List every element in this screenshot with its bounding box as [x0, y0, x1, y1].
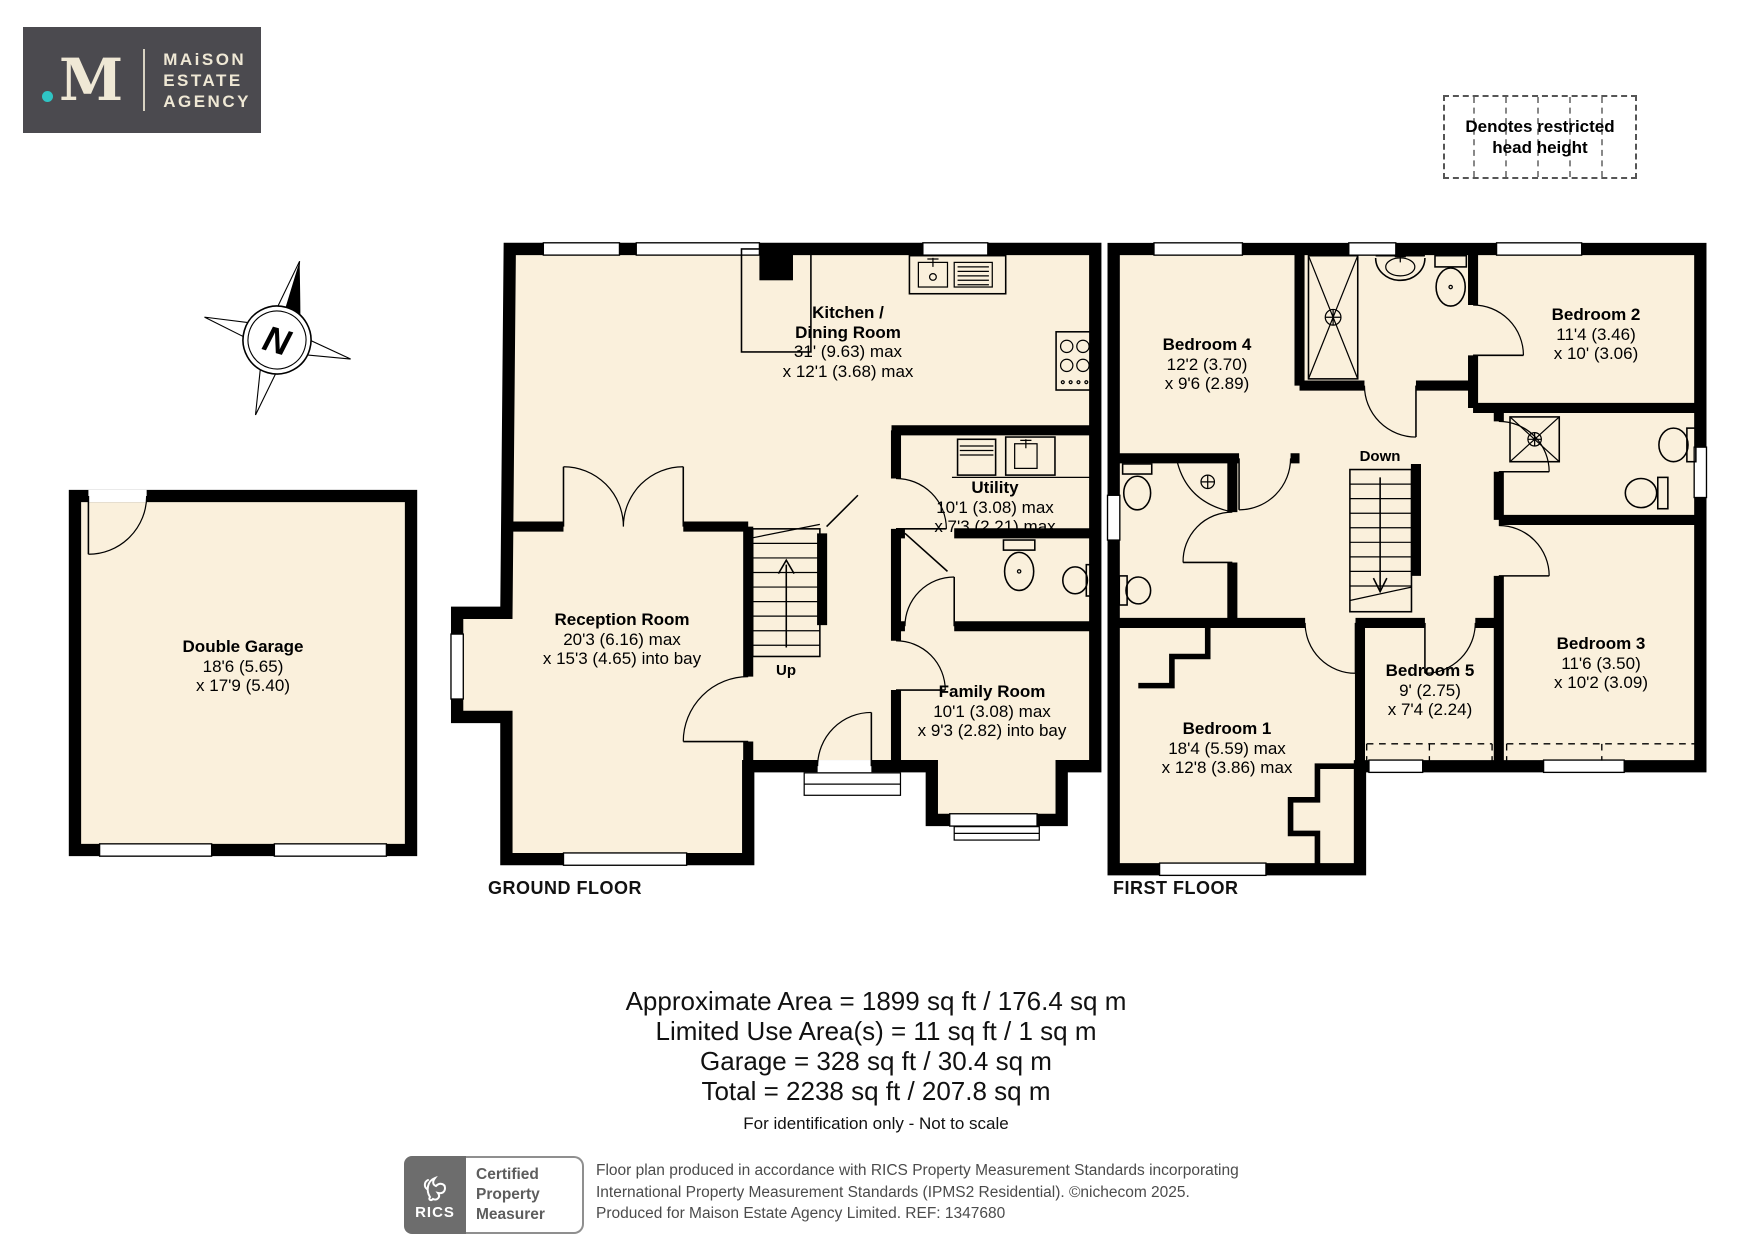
room-dim: x 15'3 (4.65) into bay — [502, 649, 742, 669]
stairs-down-label: Down — [1350, 448, 1410, 465]
total-area: Total = 2238 sq ft / 207.8 sq m — [376, 1076, 1376, 1106]
room-dim: 11'6 (3.50) — [1501, 654, 1701, 674]
legend-text-line1: Denotes restricted — [1439, 116, 1641, 137]
scale-disclaimer: For identification only - Not to scale — [376, 1114, 1376, 1134]
room-dim: x 7'3 (2.21) max — [895, 517, 1095, 537]
room-name: Family Room — [892, 682, 1092, 702]
garage-area: Garage = 328 sq ft / 30.4 sq m — [376, 1046, 1376, 1076]
room-dim: x 9'3 (2.82) into bay — [892, 721, 1092, 741]
room-dim: 11'4 (3.46) — [1496, 325, 1696, 345]
room-dim: x 12'1 (3.68) max — [708, 362, 988, 382]
stairs-up-label: Up — [756, 662, 816, 679]
room-dim: x 10'2 (3.09) — [1501, 673, 1701, 693]
room-dim: x 10' (3.06) — [1496, 344, 1696, 364]
fine-print-line3: Produced for Maison Estate Agency Limite… — [596, 1203, 1239, 1225]
logo-word-3: AGENCY — [163, 91, 251, 112]
room-dim: 18'4 (5.59) max — [1127, 739, 1327, 759]
room-label-utility: Utility 10'1 (3.08) max x 7'3 (2.21) max — [895, 478, 1095, 537]
room-name: Double Garage — [66, 637, 420, 657]
room-label-bedroom2: Bedroom 2 11'4 (3.46) x 10' (3.06) — [1496, 305, 1696, 364]
room-name: Bedroom 4 — [1107, 335, 1307, 355]
room-label-family-room: Family Room 10'1 (3.08) max x 9'3 (2.82)… — [892, 682, 1092, 741]
logo-mark-letter: M — [59, 46, 123, 114]
fine-print-line1: Floor plan produced in accordance with R… — [596, 1160, 1239, 1182]
legend-text: Denotes restricted head height — [1439, 116, 1641, 158]
room-dim: x 17'9 (5.40) — [66, 676, 420, 696]
legend-text-line2: head height — [1439, 137, 1641, 158]
room-dim: 20'3 (6.16) max — [502, 630, 742, 650]
certified-property-measurer-badge: Certified Property Measurer — [466, 1156, 584, 1234]
room-dim: 10'1 (3.08) max — [895, 498, 1095, 518]
room-name: Bedroom 1 — [1127, 719, 1327, 739]
north-compass: N — [192, 252, 362, 422]
logo-wordmark: MAiSON ESTATE AGENCY — [163, 49, 251, 112]
area-summary: Approximate Area = 1899 sq ft / 176.4 sq… — [376, 986, 1376, 1134]
room-dim: 12'2 (3.70) — [1107, 355, 1307, 375]
room-dim: 10'1 (3.08) max — [892, 702, 1092, 722]
room-name: Dining Room — [708, 323, 988, 343]
restricted-head-height-legend: Denotes restricted head height — [1443, 95, 1637, 179]
ground-floor-title: GROUND FLOOR — [488, 878, 642, 899]
cert-line3: Measurer — [476, 1205, 582, 1225]
rics-lion-icon — [417, 1169, 453, 1203]
room-dim: 31' (9.63) max — [708, 342, 988, 362]
room-label-bedroom3: Bedroom 3 11'6 (3.50) x 10'2 (3.09) — [1501, 634, 1701, 693]
rics-badge: RICS — [404, 1156, 466, 1234]
cert-line2: Property — [476, 1185, 582, 1205]
room-label-reception: Reception Room 20'3 (6.16) max x 15'3 (4… — [502, 610, 742, 669]
logo-word-1: MAiSON — [163, 49, 251, 70]
room-label-double-garage: Double Garage 18'6 (5.65) x 17'9 (5.40) — [66, 637, 420, 696]
room-dim: 9' (2.75) — [1330, 681, 1530, 701]
room-name: Utility — [895, 478, 1095, 498]
rics-wordmark: RICS — [415, 1204, 455, 1221]
room-dim: 18'6 (5.65) — [66, 657, 420, 677]
cert-line1: Certified — [476, 1165, 582, 1185]
logo-divider — [143, 49, 145, 111]
room-dim: x 12'8 (3.86) max — [1127, 758, 1327, 778]
first-floor-title: FIRST FLOOR — [1113, 878, 1239, 899]
floorplan-page: M MAiSON ESTATE AGENCY Denotes restricte… — [0, 0, 1755, 1241]
room-dim: x 7'4 (2.24) — [1330, 700, 1530, 720]
production-fine-print: Floor plan produced in accordance with R… — [596, 1160, 1239, 1225]
room-name: Kitchen / — [708, 303, 988, 323]
room-label-bedroom4: Bedroom 4 12'2 (3.70) x 9'6 (2.89) — [1107, 335, 1307, 394]
approximate-area: Approximate Area = 1899 sq ft / 176.4 sq… — [376, 986, 1376, 1016]
limited-use-area: Limited Use Area(s) = 11 sq ft / 1 sq m — [376, 1016, 1376, 1046]
room-name: Reception Room — [502, 610, 742, 630]
compass-star: N — [192, 252, 362, 422]
room-label-bedroom1: Bedroom 1 18'4 (5.59) max x 12'8 (3.86) … — [1127, 719, 1327, 778]
maison-logo: M MAiSON ESTATE AGENCY — [23, 27, 261, 133]
room-label-kitchen: Kitchen / Dining Room 31' (9.63) max x 1… — [708, 303, 988, 381]
room-name: Bedroom 2 — [1496, 305, 1696, 325]
room-name: Bedroom 5 — [1330, 661, 1530, 681]
logo-word-2: ESTATE — [163, 70, 251, 91]
fine-print-line2: International Property Measurement Stand… — [596, 1182, 1239, 1204]
room-label-bedroom5: Bedroom 5 9' (2.75) x 7'4 (2.24) — [1330, 661, 1530, 720]
logo-monogram: M — [59, 51, 123, 109]
room-dim: x 9'6 (2.89) — [1107, 374, 1307, 394]
room-name: Bedroom 3 — [1501, 634, 1701, 654]
logo-dot-icon — [42, 91, 53, 102]
